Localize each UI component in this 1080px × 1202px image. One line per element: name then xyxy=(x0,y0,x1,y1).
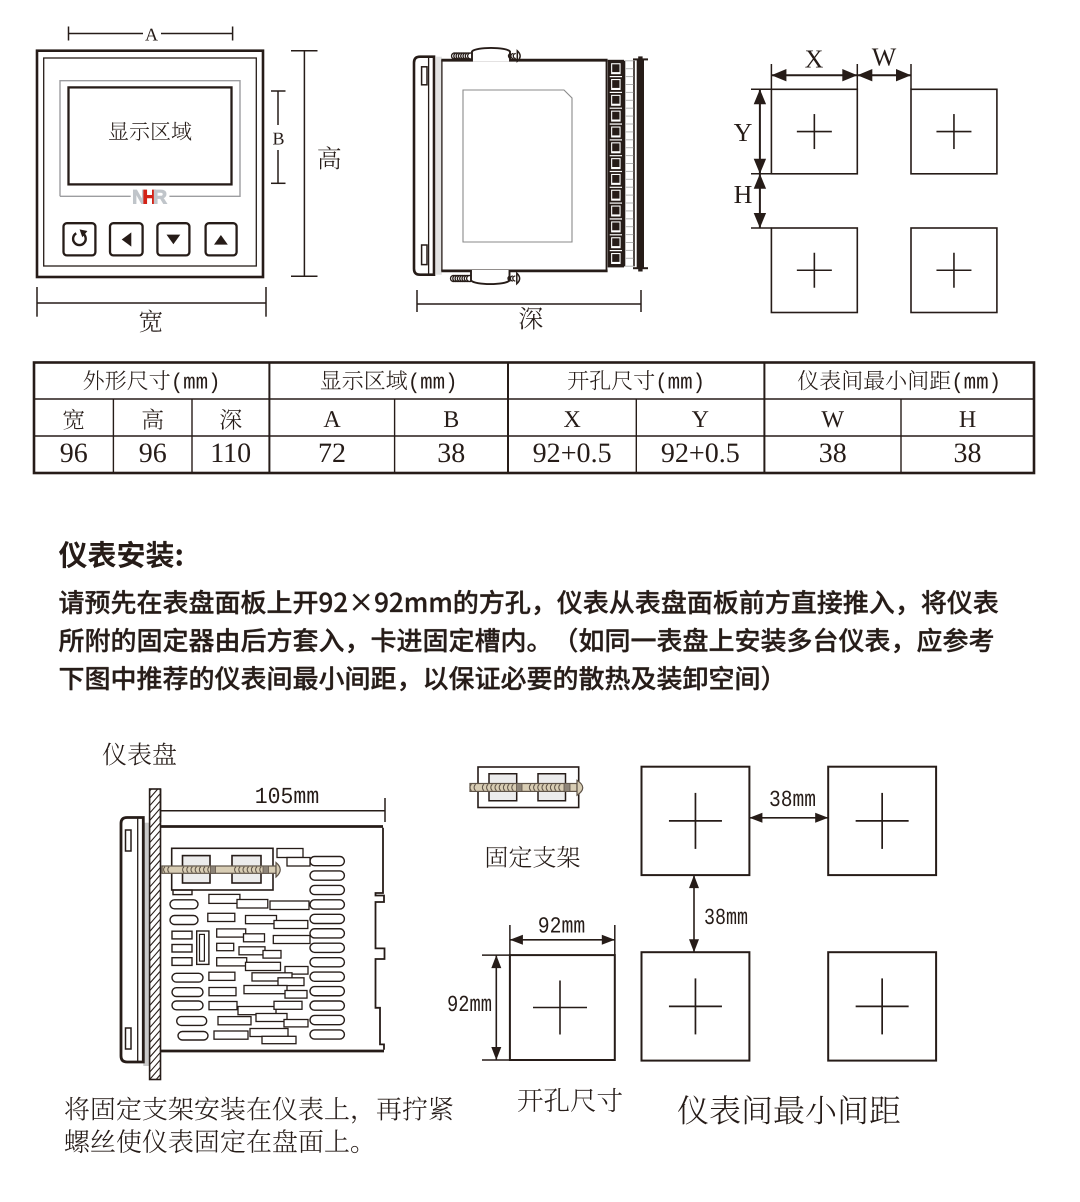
svg-text:A: A xyxy=(145,25,158,45)
svg-text:W: W xyxy=(821,407,844,433)
svg-text:105mm: 105mm xyxy=(255,784,319,810)
svg-text:92mm: 92mm xyxy=(447,992,492,1018)
svg-text:92mm: 92mm xyxy=(538,914,586,940)
svg-text:(mm): (mm) xyxy=(408,371,458,396)
svg-text:Y: Y xyxy=(692,407,709,433)
svg-text:R: R xyxy=(153,187,167,209)
svg-text:B: B xyxy=(443,407,459,433)
svg-text:92+0.5: 92+0.5 xyxy=(661,438,740,469)
svg-text:38: 38 xyxy=(954,438,982,469)
svg-text:72: 72 xyxy=(318,438,346,469)
svg-text:H: H xyxy=(959,407,976,433)
svg-text:38: 38 xyxy=(437,438,465,469)
svg-text:H: H xyxy=(734,180,753,209)
svg-text:W: W xyxy=(872,43,897,72)
svg-text:(mm): (mm) xyxy=(655,371,705,396)
svg-text:110: 110 xyxy=(210,438,251,469)
svg-text:Y: Y xyxy=(734,118,753,147)
svg-text:38mm: 38mm xyxy=(704,905,748,931)
svg-text:B: B xyxy=(272,129,284,149)
svg-text:38mm: 38mm xyxy=(769,787,816,813)
svg-text:96: 96 xyxy=(60,438,88,469)
svg-text:92+0.5: 92+0.5 xyxy=(533,438,612,469)
svg-text:A: A xyxy=(323,407,341,433)
svg-text:38: 38 xyxy=(819,438,847,469)
svg-text:(mm): (mm) xyxy=(951,371,1001,396)
svg-text:X: X xyxy=(563,407,580,433)
svg-text:(mm): (mm) xyxy=(171,371,221,396)
svg-text:X: X xyxy=(805,45,824,74)
svg-text:96: 96 xyxy=(139,438,167,469)
